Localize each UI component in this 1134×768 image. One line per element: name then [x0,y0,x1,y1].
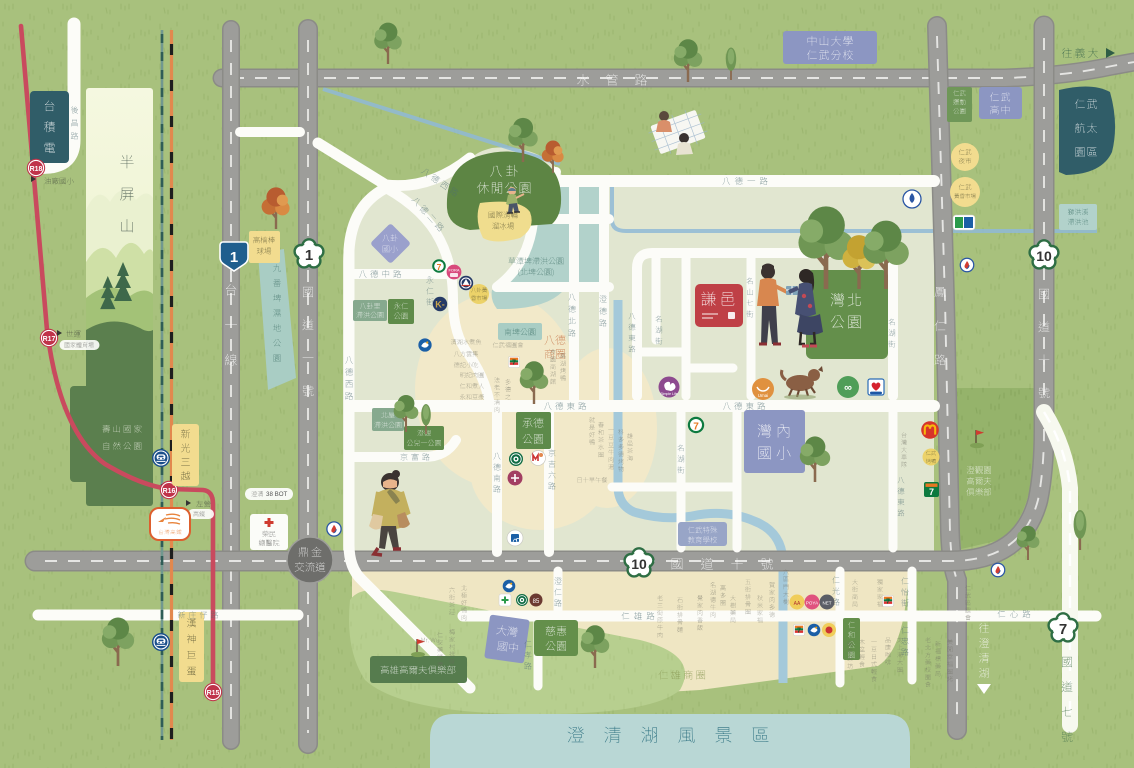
svg-text:Simple Life: Simple Life [660,392,677,396]
svg-text:NET: NET [823,601,832,606]
svg-text:R18: R18 [30,166,43,173]
svg-text:FORA: FORA [448,268,459,273]
svg-text:7: 7 [437,262,442,272]
svg-text:POYA: POYA [806,601,818,606]
svg-text:K-: K- [435,300,445,310]
svg-text:R15: R15 [207,690,220,697]
svg-text:7: 7 [929,487,934,497]
svg-text:10: 10 [1036,248,1052,264]
svg-text:10: 10 [631,556,647,572]
svg-text:85: 85 [533,599,540,605]
svg-text:R17: R17 [43,336,56,343]
svg-text:Umai: Umai [758,393,769,398]
svg-text:1: 1 [305,247,313,264]
svg-text:∞: ∞ [844,382,852,394]
svg-text:AA: AA [794,601,801,607]
svg-text:7: 7 [693,422,699,433]
svg-text:R16: R16 [163,488,176,495]
svg-text:38 BOT: 38 BOT [266,491,288,498]
svg-text:7: 7 [1059,621,1067,638]
svg-text:1: 1 [230,249,238,266]
